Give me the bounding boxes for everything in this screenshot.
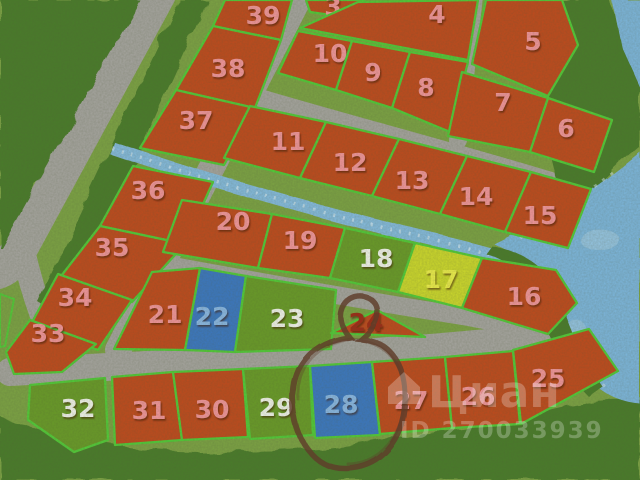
- plot-map: 3393837363534334109857611121314152019181…: [0, 0, 640, 480]
- watermark-logo-text: Циан: [428, 367, 560, 418]
- watermark-id-text: ID 270033939: [400, 418, 604, 444]
